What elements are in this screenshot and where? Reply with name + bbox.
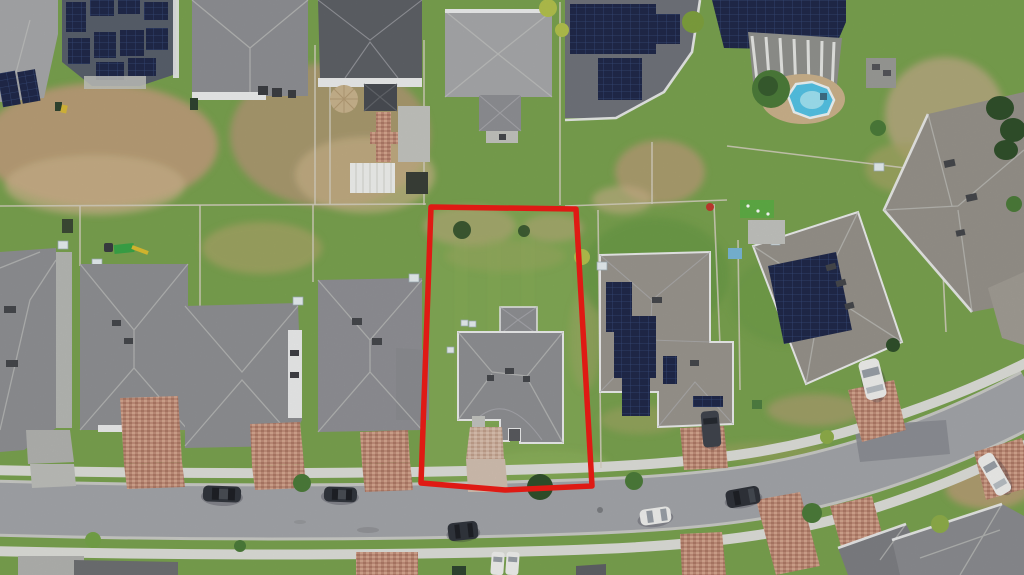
photo-grain-overlay: [0, 0, 1024, 575]
aerial-photo-stage: Aerial drone photo of a suburban neighbo…: [0, 0, 1024, 575]
aerial-neighborhood-photo: Aerial drone photo of a suburban neighbo…: [0, 0, 1024, 575]
